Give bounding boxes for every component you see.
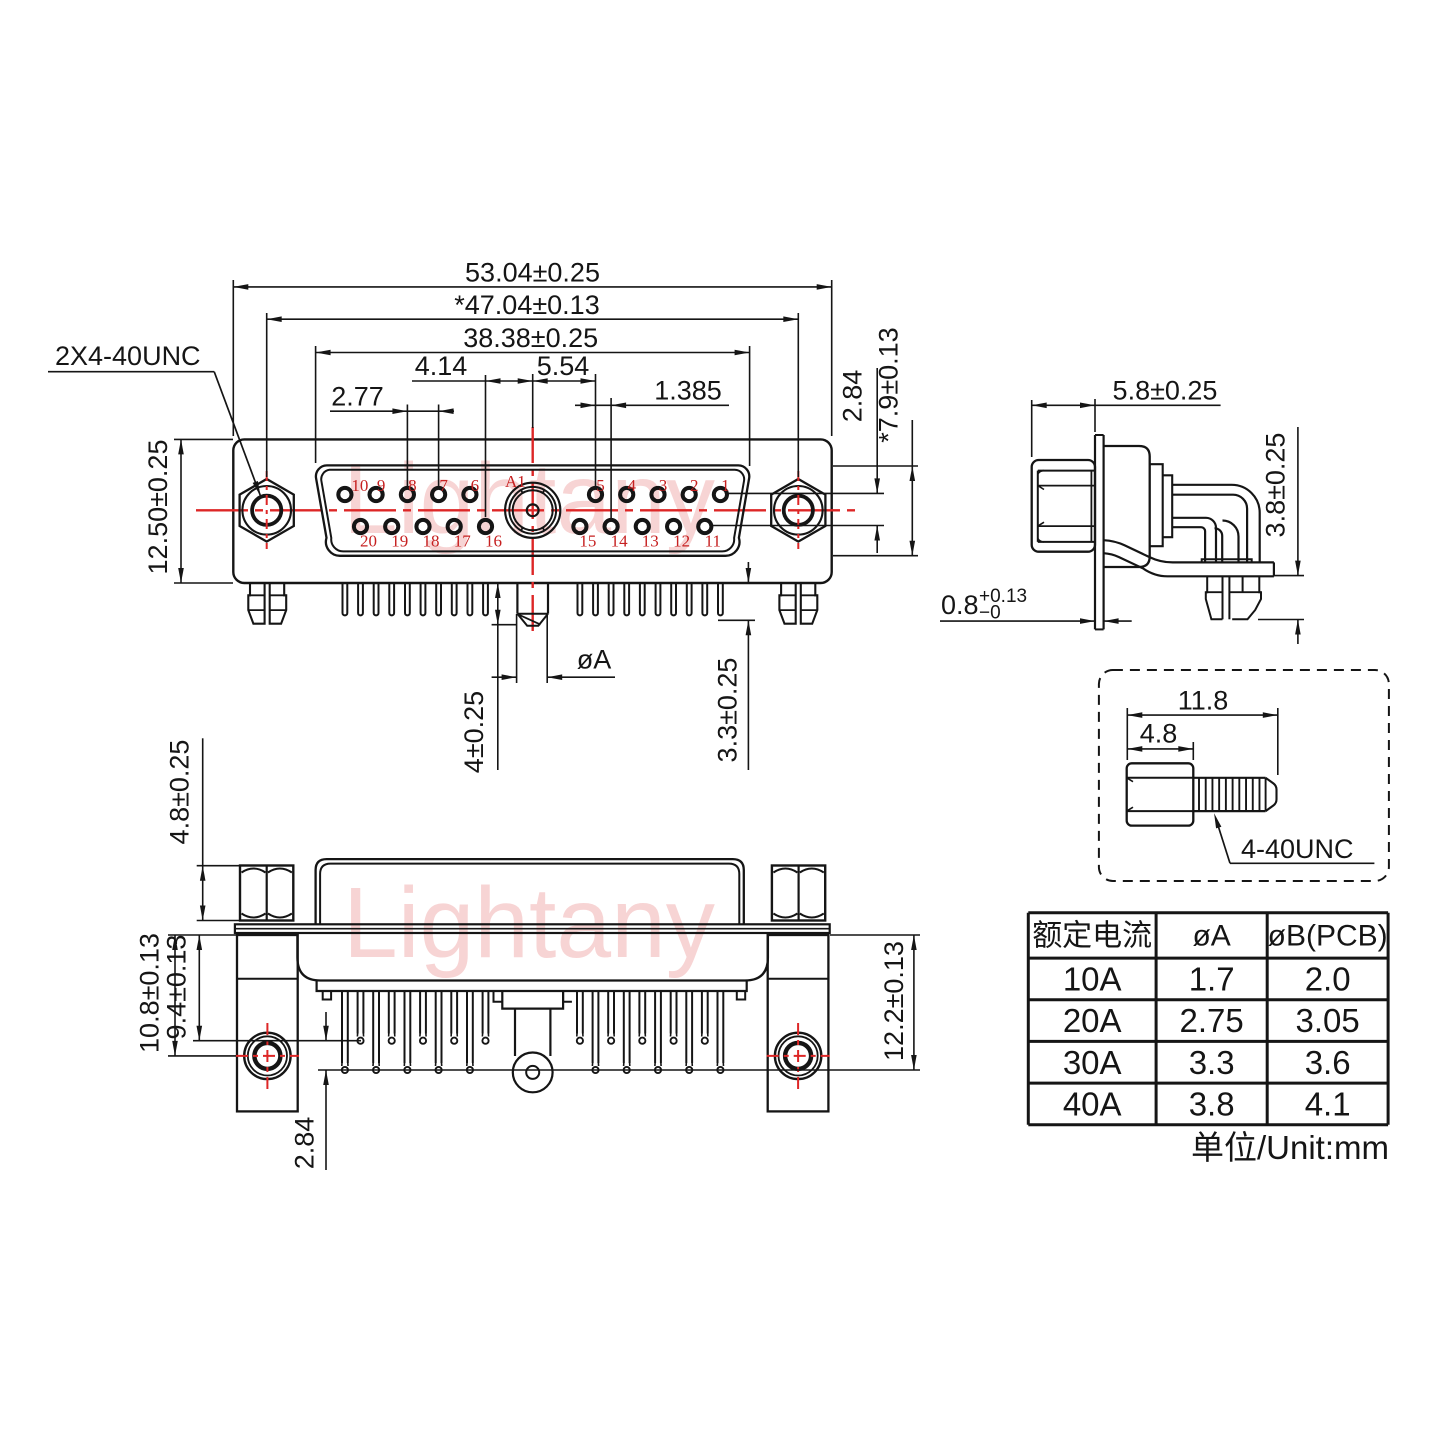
svg-text:7: 7 <box>439 476 448 495</box>
svg-text:3.8±0.25: 3.8±0.25 <box>1261 433 1291 538</box>
svg-text:1.385: 1.385 <box>654 376 722 406</box>
svg-text:3.05: 3.05 <box>1296 1002 1360 1039</box>
svg-text:2.84: 2.84 <box>290 1117 320 1170</box>
svg-text:4.8±0.25: 4.8±0.25 <box>165 740 195 845</box>
svg-text:5: 5 <box>596 476 605 495</box>
svg-text:4: 4 <box>627 476 636 495</box>
svg-text:2.75: 2.75 <box>1180 1002 1244 1039</box>
svg-text:5.54: 5.54 <box>537 351 590 381</box>
svg-text:5.8±0.25: 5.8±0.25 <box>1113 376 1218 406</box>
svg-text:2.0: 2.0 <box>1305 960 1351 997</box>
svg-text:12: 12 <box>673 532 690 551</box>
svg-text:2.84: 2.84 <box>838 370 868 423</box>
svg-text:*47.04±0.13: *47.04±0.13 <box>454 290 599 320</box>
svg-text:1.7: 1.7 <box>1189 960 1235 997</box>
svg-text:4.1: 4.1 <box>1305 1085 1351 1122</box>
svg-text:10A: 10A <box>1063 960 1122 997</box>
svg-text:12.2±0.13: 12.2±0.13 <box>879 941 909 1061</box>
svg-text:额定电流: 额定电流 <box>1032 920 1152 953</box>
svg-text:3.3: 3.3 <box>1189 1044 1235 1081</box>
svg-text:−0: −0 <box>979 603 1001 624</box>
svg-text:38.38±0.25: 38.38±0.25 <box>463 323 598 353</box>
svg-text:12.50±0.25: 12.50±0.25 <box>143 440 173 575</box>
svg-text:11.8: 11.8 <box>1178 686 1229 716</box>
svg-text:3.6: 3.6 <box>1305 1044 1351 1081</box>
svg-text:16: 16 <box>485 532 502 551</box>
svg-text:9: 9 <box>377 476 386 495</box>
svg-text:8: 8 <box>408 476 417 495</box>
svg-text:4-40UNC: 4-40UNC <box>1241 834 1354 864</box>
svg-text:20: 20 <box>360 532 377 551</box>
svg-text:单位/Unit:mm: 单位/Unit:mm <box>1191 1129 1389 1166</box>
svg-text:19: 19 <box>391 532 408 551</box>
svg-text:4.14: 4.14 <box>415 351 468 381</box>
svg-text:A1: A1 <box>505 472 526 491</box>
svg-text:3: 3 <box>659 476 668 495</box>
svg-text:15: 15 <box>579 532 596 551</box>
svg-text:14: 14 <box>611 532 629 551</box>
svg-text:10: 10 <box>351 476 368 495</box>
svg-text:10.8±0.13: 10.8±0.13 <box>135 933 165 1053</box>
svg-text:9.4±0.13: 9.4±0.13 <box>162 935 192 1040</box>
svg-text:6: 6 <box>471 476 480 495</box>
svg-text:17: 17 <box>454 532 472 551</box>
svg-text:øA: øA <box>1192 920 1230 953</box>
svg-text:Lightany: Lightany <box>343 867 715 979</box>
svg-text:11: 11 <box>705 532 721 551</box>
svg-text:18: 18 <box>423 532 440 551</box>
svg-text:20A: 20A <box>1063 1002 1122 1039</box>
svg-text:2.77: 2.77 <box>331 382 384 412</box>
svg-text:2: 2 <box>690 476 699 495</box>
svg-text:3.8: 3.8 <box>1189 1085 1235 1122</box>
svg-text:4.8: 4.8 <box>1140 719 1178 749</box>
svg-text:*7.9±0.13: *7.9±0.13 <box>874 327 904 442</box>
svg-text:øB(PCB): øB(PCB) <box>1268 920 1388 953</box>
svg-text:4±0.25: 4±0.25 <box>459 691 489 773</box>
svg-text:3.3±0.25: 3.3±0.25 <box>713 658 743 763</box>
svg-text:2X4-40UNC: 2X4-40UNC <box>55 341 201 371</box>
svg-text:0.8: 0.8 <box>941 590 979 620</box>
svg-text:øA: øA <box>577 645 612 675</box>
svg-text:30A: 30A <box>1063 1044 1122 1081</box>
svg-text:13: 13 <box>642 532 659 551</box>
svg-text:40A: 40A <box>1063 1085 1122 1122</box>
svg-text:53.04±0.25: 53.04±0.25 <box>465 258 600 288</box>
svg-text:1: 1 <box>721 476 730 495</box>
